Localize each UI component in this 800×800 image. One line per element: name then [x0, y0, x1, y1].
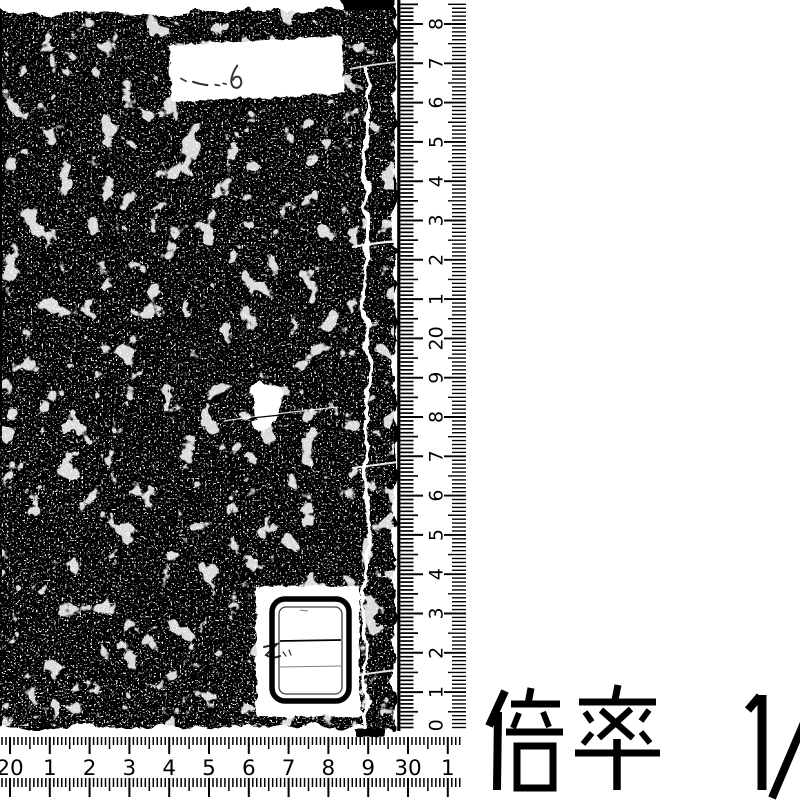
vruler-number: 3 [426, 214, 448, 226]
vruler-number: 9 [426, 372, 448, 384]
hruler-number: 4 [162, 756, 176, 781]
hruler-number: 1 [43, 756, 57, 781]
horizontal-ruler: 20123456789301 [0, 737, 460, 797]
vruler-number: 7 [426, 450, 448, 462]
magnification-value [748, 695, 800, 798]
scan-page: 876543212098765432110 20123456789301 [0, 0, 800, 800]
hruler-number: 5 [202, 756, 216, 781]
kanji-bai [489, 688, 563, 790]
scan-image: 876543212098765432110 20123456789301 [0, 0, 800, 800]
vruler-number: 6 [426, 490, 448, 502]
vruler-number: 2 [426, 254, 448, 266]
vruler-number: 1 [426, 686, 448, 698]
vruler-number: 7 [426, 57, 448, 69]
magnification-text [489, 685, 800, 798]
vruler-number: 4 [426, 568, 448, 580]
vruler-number: 6 [426, 97, 448, 109]
vruler-number: 5 [426, 136, 448, 148]
hruler-number: 6 [242, 756, 256, 781]
hruler-number: 2 [83, 756, 97, 781]
kanji-ritsu [575, 685, 660, 790]
hruler-number: 7 [282, 756, 296, 781]
hruler-number: 20 [0, 756, 24, 781]
bottom-label-rule-1 [280, 640, 341, 641]
vruler-edge [397, 0, 400, 731]
vruler-number: 8 [426, 18, 448, 30]
book-top-label [169, 36, 345, 102]
vruler-number: 4 [426, 175, 448, 187]
scan-smudge [356, 729, 384, 736]
book-bottom-label [256, 586, 360, 717]
hruler-number: 8 [322, 756, 336, 781]
vruler-number: 2 [426, 647, 448, 659]
hruler-number: 3 [123, 756, 137, 781]
hruler-number: 9 [361, 756, 375, 781]
hruler-number: 30 [394, 756, 421, 781]
vruler-number: 8 [426, 411, 448, 423]
vruler-number: 3 [426, 607, 448, 619]
vruler-number: 1 [426, 293, 448, 305]
vruler-number: 20 [426, 326, 448, 350]
vertical-ruler: 876543212098765432110 [397, 0, 466, 743]
hruler-number: 1 [441, 756, 455, 781]
vruler-number: 5 [426, 529, 448, 541]
